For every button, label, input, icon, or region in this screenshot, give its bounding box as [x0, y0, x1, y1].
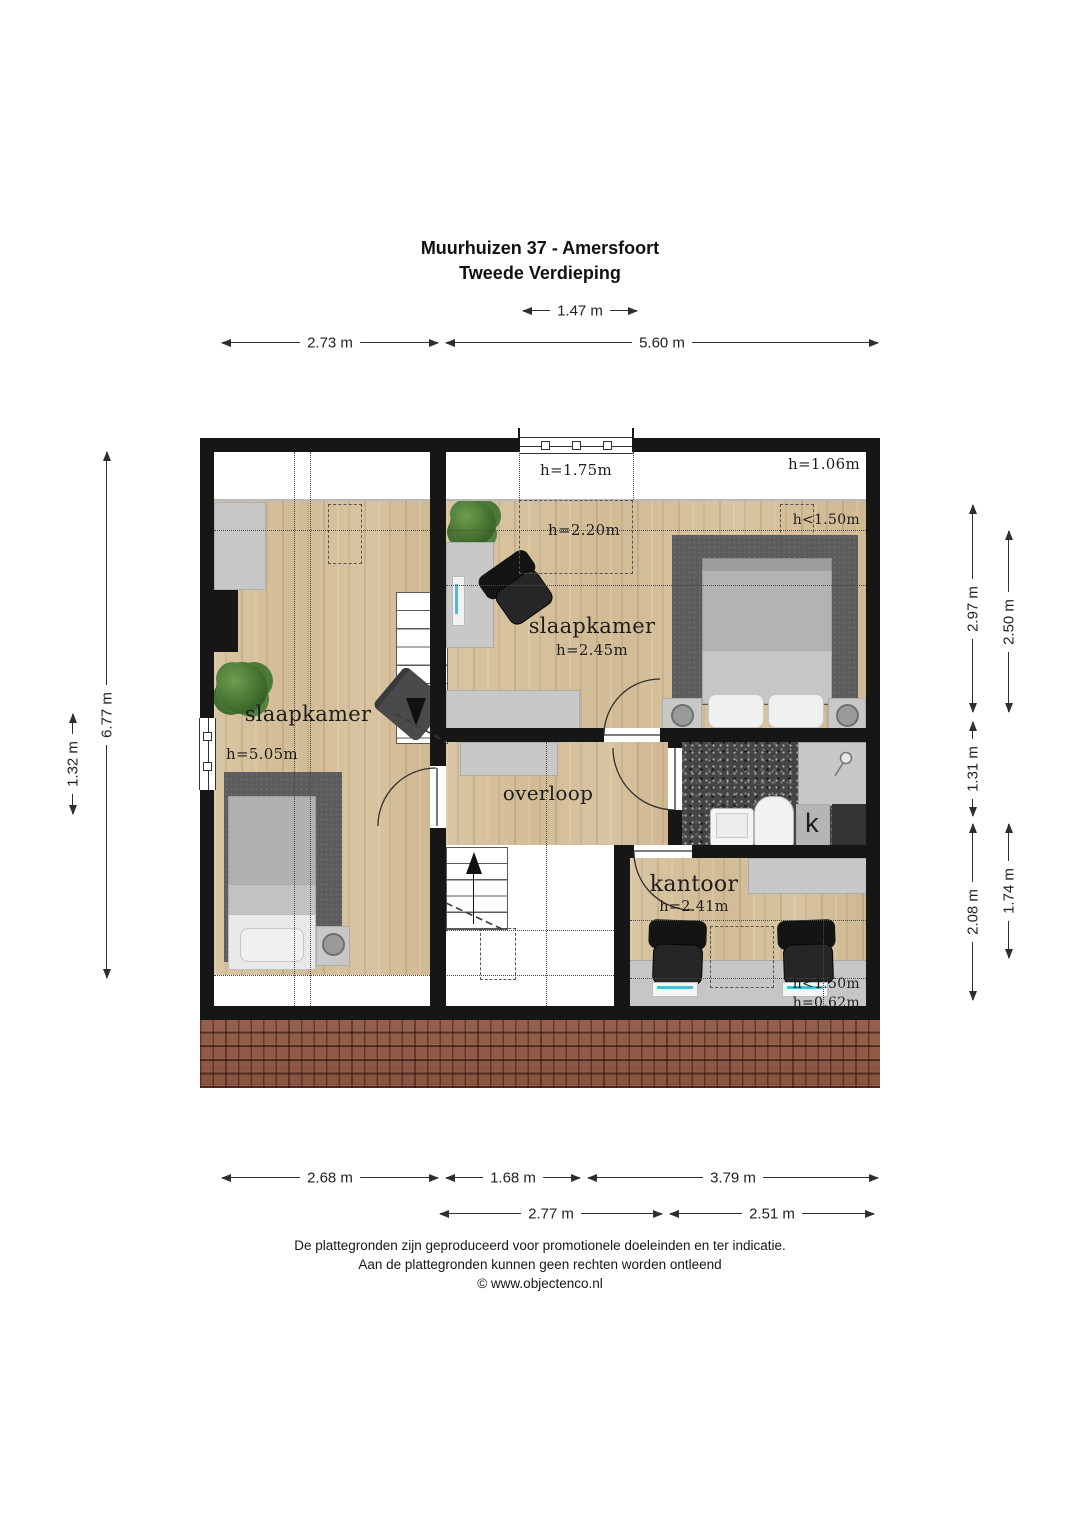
chimney-dashed-outline: [328, 504, 362, 564]
bedroom-left-knee-band: [214, 975, 430, 1006]
lamp-icon: [836, 704, 859, 727]
closet-label: k: [800, 808, 824, 839]
stairs-up-arrow-icon: [466, 852, 482, 874]
stairwell-dotted-line: [446, 930, 614, 931]
disclaimer: De plattegronden zijn geproduceerd voor …: [0, 1236, 1080, 1293]
copyright: © www.objectenco.nl: [0, 1274, 1080, 1293]
headroom-dotted-line: [446, 585, 866, 586]
height-label-office: h=2.41m: [659, 899, 729, 915]
wall-right: [866, 438, 880, 1020]
height-label-knee-right: h<1.50m: [760, 512, 860, 528]
title-address: Muurhuizen 37 - Amersfoort: [0, 236, 1080, 261]
disclaimer-line1: De plattegronden zijn geproduceerd voor …: [0, 1236, 1080, 1255]
dim-label: 2.08 m: [965, 882, 982, 942]
dim-right-office-inner: 1.74 m: [1008, 824, 1009, 958]
toilet: [754, 796, 794, 847]
dim-bottom-left: 2.68 m: [222, 1177, 438, 1178]
window-pane: [603, 441, 612, 450]
height-label-office-knee: h<1.50m: [760, 976, 860, 992]
dim-label: 2.77 m: [521, 1206, 581, 1223]
shower: [798, 742, 868, 806]
dim-top-right: 5.60 m: [446, 342, 878, 343]
chair-seat: [652, 943, 704, 986]
single-bed-duvet: [228, 796, 316, 886]
dim-label: 2.73 m: [300, 335, 360, 352]
door-opening: [634, 845, 692, 858]
roof-tiles: [200, 1020, 880, 1088]
knee-wall-dotted-line: [214, 975, 614, 976]
monitor-accent: [455, 584, 458, 614]
dim-label: 2.50 m: [1001, 592, 1018, 652]
dim-label: 2.68 m: [300, 1170, 360, 1187]
door-opening: [430, 766, 446, 828]
dim-label: 3.79 m: [703, 1170, 763, 1187]
wall-stairwell-right: [614, 845, 630, 1006]
room-label-bedroom-left: slaapkamer: [245, 702, 372, 726]
height-label-dormer: h=1.75m: [540, 461, 612, 479]
dim-bottom-office: 2.51 m: [670, 1213, 874, 1214]
dormer-dotted-line: [633, 452, 634, 500]
dormer-dotted-line: [519, 452, 520, 500]
sink: [710, 808, 754, 847]
chimney-block: [214, 590, 238, 652]
dim-left-total: 6.77 m: [106, 452, 107, 978]
office-dotted-line: [823, 920, 824, 1006]
window-pane: [203, 762, 212, 771]
height-label-top-right: h=1.06m: [760, 455, 860, 473]
dim-right-bedroom-inner: 2.50 m: [1008, 531, 1009, 712]
wardrobe: [214, 502, 266, 590]
room-label-office: kantoor: [650, 872, 739, 897]
arrow-stem: [473, 872, 474, 924]
pillow: [768, 694, 824, 728]
height-label-bedroom-right: h=2.45m: [556, 641, 628, 659]
dim-bottom-landing: 2.77 m: [440, 1213, 662, 1214]
dim-label: 2.51 m: [742, 1206, 802, 1223]
roof-slope-dotted-line: [310, 452, 311, 1006]
disclaimer-line2: Aan de plattegronden kunnen geen rechten…: [0, 1255, 1080, 1274]
height-label-bedroom-left: h=5.05m: [226, 745, 298, 763]
sideboard: [446, 690, 580, 730]
dim-left-window: 1.32 m: [72, 714, 73, 814]
lamp-icon: [671, 704, 694, 727]
roof-slope-dotted-line: [294, 452, 295, 1006]
side-window: [199, 718, 216, 790]
dim-label: 6.77 m: [99, 685, 116, 745]
single-bed-fold: [228, 884, 316, 916]
dim-label: 2.97 m: [965, 579, 982, 639]
wall-divider: [430, 452, 446, 1006]
dim-right-bathroom: 1.31 m: [972, 722, 973, 816]
office-dotted-line: [630, 920, 866, 921]
dim-label: 1.68 m: [483, 1170, 543, 1187]
window-pane: [572, 441, 581, 450]
page-title: Muurhuizen 37 - Amersfoort Tweede Verdie…: [0, 236, 1080, 286]
height-label-upper: h=2.20m: [548, 521, 620, 539]
plant: [450, 500, 496, 546]
speaker-icon: [322, 933, 345, 956]
floorplan-page: Muurhuizen 37 - Amersfoort Tweede Verdie…: [0, 0, 1080, 1527]
pillow: [708, 694, 764, 728]
office-cabinet: [748, 858, 868, 894]
dark-cabinet: [832, 804, 866, 845]
dim-top-left: 2.73 m: [222, 342, 438, 343]
stair-void-dashed-outline: [480, 928, 516, 980]
dim-right-office: 2.08 m: [972, 824, 973, 1000]
door-opening: [604, 728, 660, 742]
office-chair: [647, 919, 707, 987]
dim-bottom-middle: 1.68 m: [446, 1177, 580, 1178]
stairs-down-arrow-icon: [406, 698, 426, 726]
title-floor: Tweede Verdieping: [0, 261, 1080, 286]
dim-label: 1.31 m: [965, 739, 982, 799]
dim-dormer-width: 1.47 m: [523, 310, 637, 311]
dim-label: 1.32 m: [65, 734, 82, 794]
room-label-bedroom-right: slaapkamer: [529, 614, 656, 638]
double-bed-duvet: [702, 570, 832, 652]
landing-cabinet: [460, 742, 558, 776]
window-pane: [541, 441, 550, 450]
dim-bottom-right: 3.79 m: [588, 1177, 878, 1178]
height-label-office-low: h=0.62m: [760, 995, 860, 1011]
desk-monitor: [452, 576, 465, 626]
window-pane: [203, 732, 212, 741]
dim-label: 1.47 m: [550, 303, 610, 320]
dim-label: 5.60 m: [632, 335, 692, 352]
dim-label: 1.74 m: [1001, 861, 1018, 921]
room-label-landing: overloop: [503, 781, 593, 805]
door-opening: [668, 748, 682, 810]
laptop: [652, 982, 698, 997]
dim-right-bedroom: 2.97 m: [972, 505, 973, 712]
